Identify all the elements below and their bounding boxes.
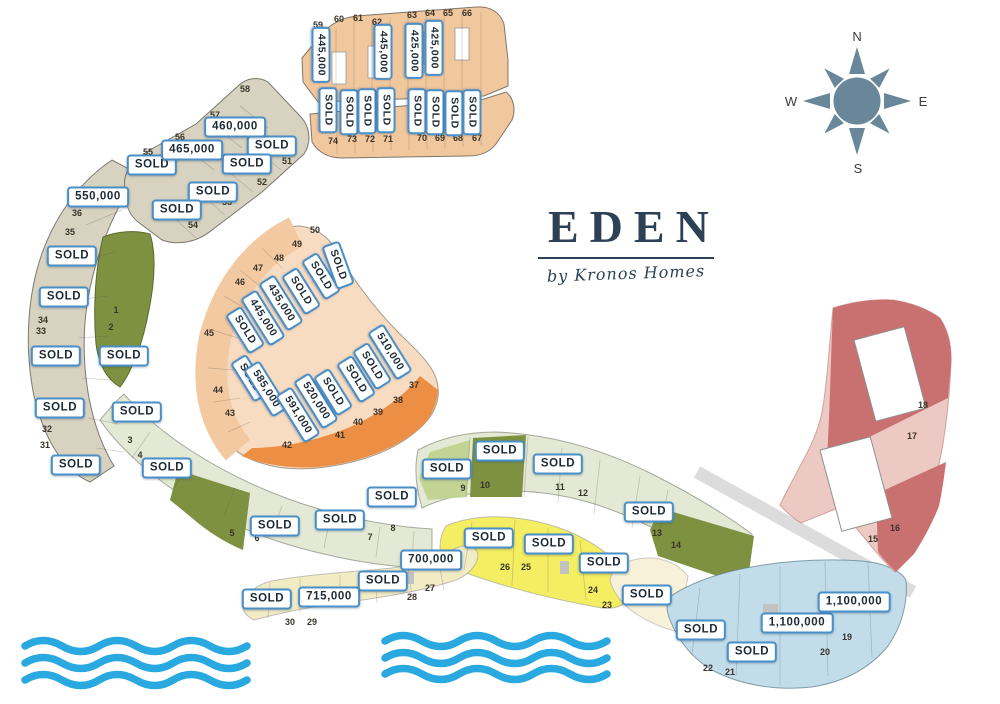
plot-number: 60: [334, 14, 344, 24]
plot-number: 50: [310, 225, 320, 235]
plot-number: 27: [425, 583, 435, 593]
plot-number: 19: [842, 632, 852, 642]
plot-number: 39: [373, 407, 383, 417]
compass-south-label: S: [854, 161, 863, 176]
sold-label[interactable]: SOLD: [142, 458, 192, 479]
brand-name: EDEN: [537, 203, 715, 251]
price-label[interactable]: 445,000: [312, 27, 331, 83]
sold-label[interactable]: SOLD: [377, 87, 396, 133]
plot-number: 31: [40, 440, 50, 450]
plot-number: 23: [602, 600, 612, 610]
plot-number: 22: [703, 663, 713, 673]
plot-number: 54: [188, 220, 198, 230]
sold-label[interactable]: SOLD: [152, 200, 202, 221]
plot-number: 12: [578, 488, 588, 498]
plot-number: 52: [257, 177, 267, 187]
sold-label[interactable]: SOLD: [422, 459, 472, 480]
sold-label[interactable]: SOLD: [624, 502, 674, 523]
price-label[interactable]: 1,100,000: [818, 592, 891, 613]
sold-label[interactable]: SOLD: [112, 402, 162, 423]
sold-label[interactable]: SOLD: [464, 528, 514, 549]
sold-label[interactable]: SOLD: [676, 620, 726, 641]
plot-number: 8: [390, 523, 395, 533]
plot-number: 73: [347, 134, 357, 144]
price-label[interactable]: 1,100,000: [761, 613, 834, 634]
plot-number: 15: [868, 534, 878, 544]
compass-rose-icon: N E S W: [785, 29, 928, 176]
sold-label[interactable]: SOLD: [39, 287, 89, 308]
sold-label[interactable]: SOLD: [319, 87, 338, 133]
price-label[interactable]: 465,000: [161, 140, 223, 161]
sold-label[interactable]: SOLD: [727, 642, 777, 663]
masterplan: N E S W EDEN by Kronos Homes SOLDSOLDSOL…: [0, 0, 1000, 704]
sold-label[interactable]: SOLD: [579, 553, 629, 574]
price-label[interactable]: 700,000: [400, 550, 462, 571]
compass-north-label: N: [852, 29, 861, 44]
price-label[interactable]: 550,000: [67, 187, 129, 208]
compass-west-label: W: [785, 94, 798, 109]
price-label[interactable]: 445,000: [374, 24, 393, 80]
sold-label[interactable]: SOLD: [463, 89, 482, 135]
sold-label[interactable]: SOLD: [31, 346, 81, 367]
plot-number: 72: [365, 134, 375, 144]
plot-number: 38: [393, 395, 403, 405]
plot-number: 21: [725, 667, 735, 677]
brand-tagline: by Kronos Homes: [537, 261, 716, 286]
sold-label[interactable]: SOLD: [51, 455, 101, 476]
plot-number: 33: [36, 326, 46, 336]
plot-number: 24: [588, 585, 598, 595]
plot-number: 18: [918, 400, 928, 410]
sold-label[interactable]: SOLD: [524, 534, 574, 555]
plot-number: 17: [907, 431, 917, 441]
plot-number: 49: [292, 239, 302, 249]
plot-number: 11: [555, 482, 565, 492]
plot-number: 14: [671, 540, 681, 550]
price-label[interactable]: 460,000: [204, 117, 266, 138]
plot-number: 63: [407, 10, 417, 20]
plot-number: 47: [253, 263, 263, 273]
sold-label[interactable]: SOLD: [250, 516, 300, 537]
plot-number: 45: [204, 328, 214, 338]
price-label[interactable]: 425,000: [425, 20, 444, 76]
plot-number: 42: [282, 440, 292, 450]
plot-number: 1: [113, 305, 118, 315]
plot-number: 2: [108, 322, 113, 332]
sold-label[interactable]: SOLD: [242, 589, 292, 610]
sold-label[interactable]: SOLD: [315, 510, 365, 531]
plot-number: 40: [353, 417, 363, 427]
plot-number: 28: [407, 592, 417, 602]
plot-number: 46: [235, 277, 245, 287]
sold-label[interactable]: SOLD: [475, 441, 525, 462]
plot-number: 48: [274, 253, 284, 263]
sold-label[interactable]: SOLD: [533, 454, 583, 475]
sold-label[interactable]: SOLD: [222, 154, 272, 175]
plot-number: 61: [353, 13, 363, 23]
plot-number: 32: [42, 424, 52, 434]
plot-number: 37: [409, 380, 419, 390]
plot-number: 16: [890, 523, 900, 533]
plot-number: 65: [443, 8, 453, 18]
plot-number: 5: [229, 528, 234, 538]
sold-label[interactable]: SOLD: [426, 89, 445, 135]
plot-number: 3: [127, 435, 132, 445]
sold-label[interactable]: SOLD: [367, 487, 417, 508]
plot-number: 43: [225, 408, 235, 418]
plot-number: 34: [38, 315, 48, 325]
plot-number: 51: [282, 156, 292, 166]
sold-label[interactable]: SOLD: [35, 398, 85, 419]
plot-number: 44: [213, 385, 223, 395]
sold-label[interactable]: SOLD: [358, 571, 408, 592]
price-label[interactable]: 715,000: [298, 587, 360, 608]
plot-number: 74: [328, 136, 338, 146]
plot-number: 58: [240, 84, 250, 94]
sold-label[interactable]: SOLD: [47, 246, 97, 267]
brand-logo: EDEN by Kronos Homes: [537, 203, 715, 283]
waves-icon: [25, 636, 607, 686]
plot-number: 64: [425, 8, 435, 18]
plot-number: 36: [72, 208, 82, 218]
plot-number: 7: [367, 532, 372, 542]
price-label[interactable]: 425,000: [405, 23, 424, 79]
plot-number: 41: [335, 430, 345, 440]
plot-number: 9: [460, 483, 465, 493]
plot-number: 29: [307, 617, 317, 627]
sold-label[interactable]: SOLD: [622, 585, 672, 606]
sold-label[interactable]: SOLD: [340, 89, 359, 135]
sold-label[interactable]: SOLD: [358, 88, 377, 134]
plot-number: 35: [65, 227, 75, 237]
plot-number: 10: [480, 480, 490, 490]
plot-number: 25: [521, 562, 531, 572]
plot-number: 30: [285, 617, 295, 627]
sold-label[interactable]: SOLD: [445, 90, 464, 136]
plot-number: 66: [462, 8, 472, 18]
plot-number: 20: [820, 647, 830, 657]
sold-label[interactable]: SOLD: [99, 346, 149, 367]
brand-rule: [538, 257, 714, 259]
plot-number: 26: [500, 562, 510, 572]
compass-east-label: E: [919, 94, 928, 109]
plot-number: 71: [383, 134, 393, 144]
plot-number: 70: [417, 133, 427, 143]
plot-number: 13: [652, 528, 662, 538]
sold-label[interactable]: SOLD: [408, 88, 427, 134]
